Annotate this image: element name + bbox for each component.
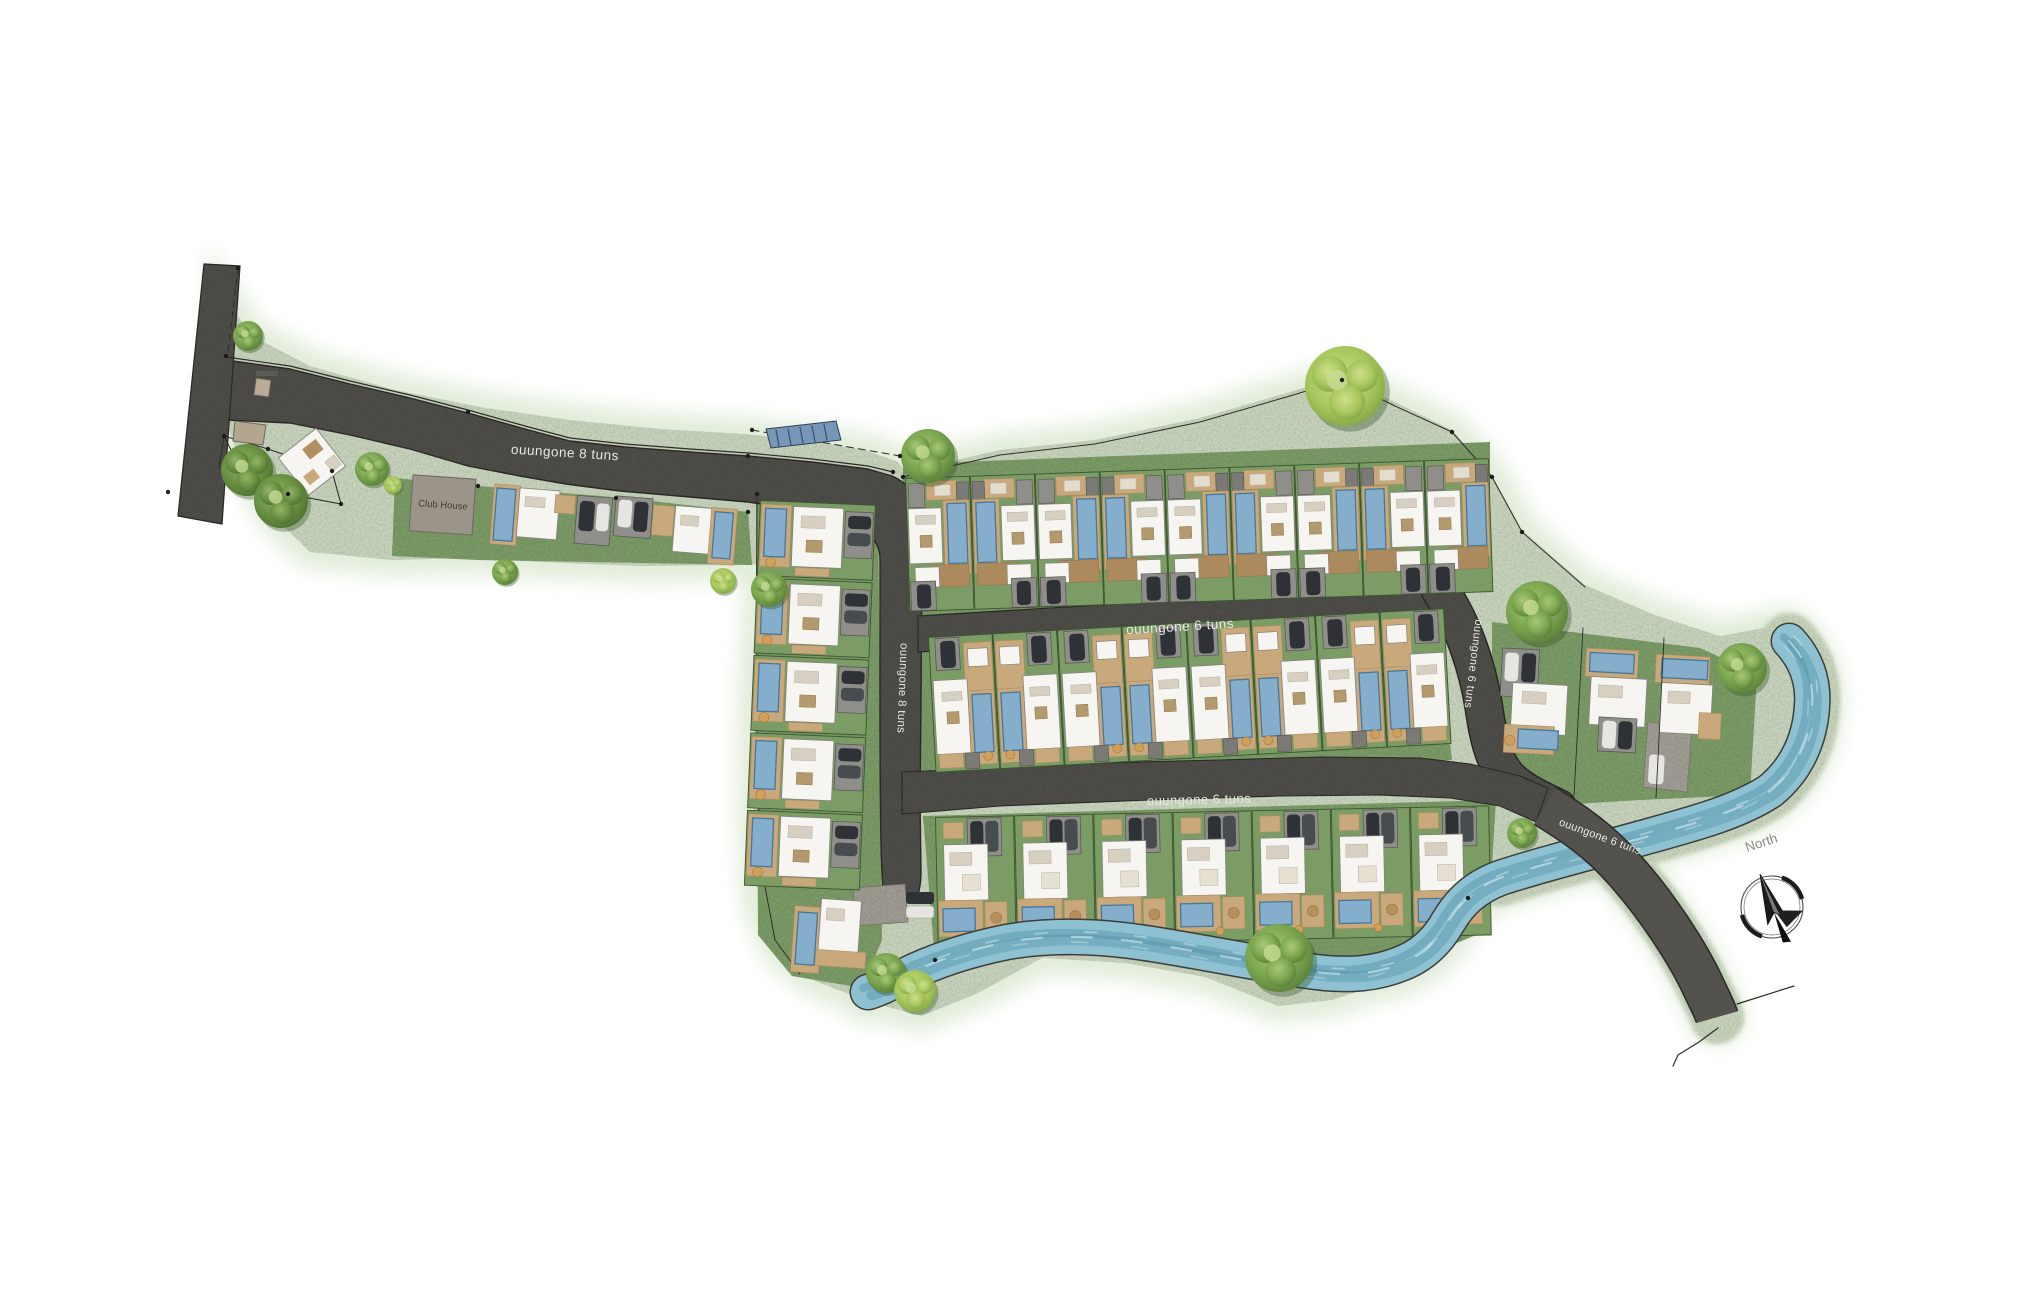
- svg-text:ouungone 6 tuns: ouungone 6 tuns: [1147, 791, 1252, 809]
